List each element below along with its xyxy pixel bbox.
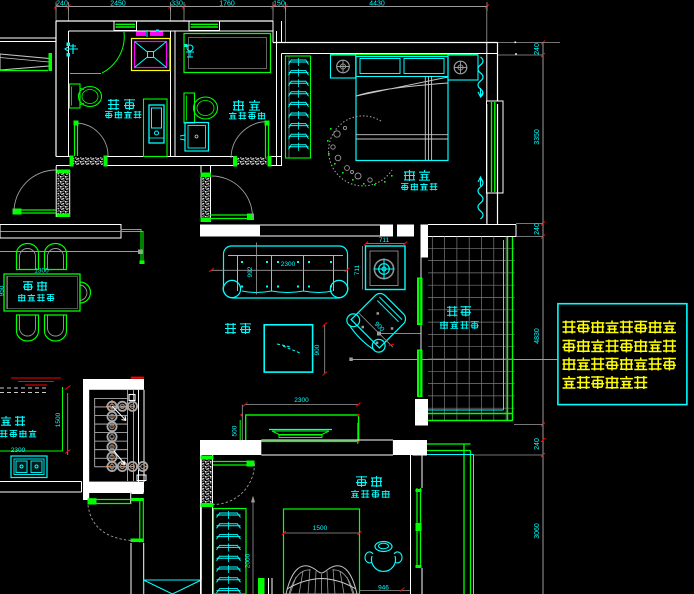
svg-text:711: 711 <box>379 237 390 244</box>
svg-text:330: 330 <box>171 1 183 8</box>
svg-text:1500: 1500 <box>313 525 328 532</box>
svg-text:240: 240 <box>534 223 541 235</box>
svg-text:2450: 2450 <box>110 1 126 8</box>
svg-text:3060: 3060 <box>534 523 541 539</box>
svg-text:150: 150 <box>273 1 285 8</box>
svg-text:1300: 1300 <box>34 268 49 275</box>
svg-text:950: 950 <box>0 285 6 296</box>
svg-text:2300: 2300 <box>294 397 309 404</box>
svg-text:992: 992 <box>247 266 254 277</box>
svg-text:2300: 2300 <box>11 447 26 454</box>
svg-text:240: 240 <box>534 438 541 450</box>
svg-text:711: 711 <box>354 264 361 275</box>
svg-text:3350: 3350 <box>534 129 541 145</box>
svg-text:500: 500 <box>232 425 239 436</box>
svg-text:2300: 2300 <box>281 261 296 268</box>
svg-text:4430: 4430 <box>369 1 385 8</box>
svg-text:1760: 1760 <box>219 1 235 8</box>
svg-text:2000: 2000 <box>245 553 252 568</box>
svg-text:1500: 1500 <box>55 412 62 427</box>
svg-text:240: 240 <box>56 1 68 8</box>
svg-text:240: 240 <box>534 43 541 55</box>
svg-text:900: 900 <box>314 344 321 355</box>
svg-text:4830: 4830 <box>534 328 541 344</box>
